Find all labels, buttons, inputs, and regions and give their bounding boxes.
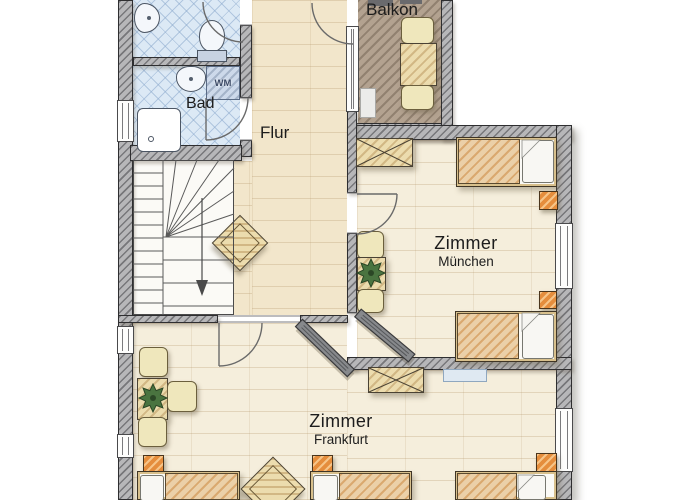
zimmer-muenchen-label-line2: München [421, 255, 511, 269]
frankfurt-bed-2-mattress [339, 473, 410, 500]
zimmer-muenchen-label-line1: Zimmer [421, 234, 511, 253]
toilet-tank [197, 50, 227, 62]
muenchen-nightstand-1 [539, 191, 558, 210]
muenchen-bed-2 [455, 311, 557, 362]
frankfurt-bed-2-pillow [313, 475, 338, 500]
zimmer-frankfurt-label-line1: Zimmer [296, 412, 386, 431]
balkon-chair-top [401, 17, 434, 44]
zimmer-frankfurt-label: Zimmer Frankfurt [296, 412, 386, 447]
bad-east-wall-upper [240, 25, 252, 98]
muenchen-bed-1-mattress [458, 139, 520, 184]
frankfurt-right-window [555, 408, 573, 472]
frankfurt-bed-1-mattress [165, 473, 238, 500]
balkon-table [400, 43, 437, 86]
toilet-bowl [199, 20, 225, 52]
frankfurt-bed-1-pillow [140, 475, 164, 500]
balkon-right-wall [441, 0, 453, 140]
bad-room-label: Bad [186, 96, 214, 113]
frankfurt-chair-bottom [138, 417, 167, 447]
balkon-planter-box [360, 88, 376, 118]
frankfurt-plant-table [137, 378, 168, 420]
bad-window [117, 100, 134, 142]
flur-muenchen-wall-mid [347, 233, 357, 313]
muenchen-bed-2-pillow [522, 314, 554, 359]
frankfurt-bed-2 [310, 471, 412, 500]
flur-frankfurt-wall-left [118, 315, 218, 323]
frankfurt-left-window-1 [117, 326, 134, 354]
frankfurt-left-window-2 [117, 434, 134, 458]
muenchen-chair-bottom [357, 289, 384, 313]
frankfurt-bed-3 [455, 471, 557, 500]
frankfurt-wardrobe [368, 367, 424, 393]
floor-plan: WM [0, 0, 700, 500]
muenchen-bed-2-mattress [457, 313, 519, 359]
shower-drain-icon [148, 136, 154, 142]
frankfurt-chair-top [139, 347, 168, 377]
balkon-door-window [346, 26, 359, 112]
zimmer-frankfurt-label-line2: Frankfurt [296, 433, 386, 447]
frankfurt-radiator [443, 369, 487, 382]
muenchen-plant-table [357, 257, 386, 291]
muenchen-nightstand-2 [539, 291, 557, 309]
balkon-room-label: Balkon [366, 1, 418, 19]
flur-room-label: Flur [260, 124, 289, 142]
bad-sink-drain-icon [189, 77, 193, 81]
muenchen-window [555, 223, 573, 289]
frankfurt-bed-3-mattress [457, 473, 517, 500]
left-outer-wall [118, 0, 133, 500]
flur-frankfurt-wall-right [300, 315, 348, 323]
frankfurt-nightstand-3 [536, 453, 557, 472]
flur-floor-upper [252, 0, 347, 315]
frankfurt-bed-3-pillow [518, 475, 546, 500]
muenchen-wardrobe [356, 138, 413, 167]
wc-sink-drain-icon [147, 16, 151, 20]
frankfurt-bed-1 [137, 471, 240, 500]
muenchen-chair-top [357, 231, 384, 259]
frankfurt-chair-right [167, 381, 197, 412]
zimmer-muenchen-label: Zimmer München [421, 234, 511, 269]
muenchen-bed-1-pillow [522, 140, 554, 183]
shower [137, 108, 181, 152]
muenchen-bed-1 [456, 137, 557, 187]
balkon-chair-bottom [401, 85, 434, 110]
